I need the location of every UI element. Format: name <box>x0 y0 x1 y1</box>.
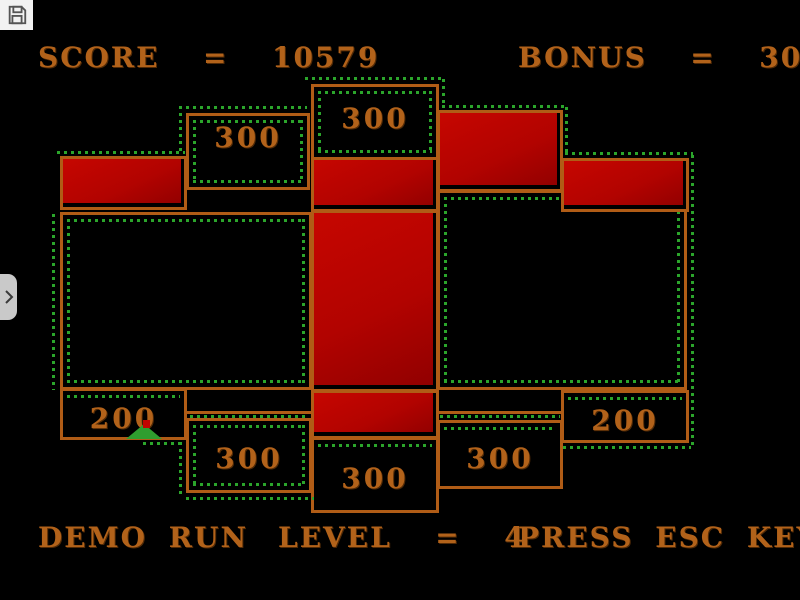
level-text: LEVEL = 4 <box>278 524 526 552</box>
wall-segment <box>186 411 312 414</box>
trail-segment <box>565 107 568 155</box>
trail-outline <box>67 219 305 383</box>
board-box <box>437 190 687 390</box>
trail-outline <box>444 427 556 430</box>
press-esc-text: PRESS ESC KEY <box>518 524 800 552</box>
trail-segment <box>442 105 568 108</box>
board-box: 300 <box>311 437 439 513</box>
trail-segment <box>563 446 691 449</box>
floppy-disk-icon <box>6 4 28 26</box>
trail-segment <box>691 155 694 447</box>
box-score-label: 300 <box>189 445 309 473</box>
trail-segment <box>565 152 693 155</box>
box-score-label: 300 <box>314 105 436 133</box>
box-score-label: 300 <box>189 124 307 152</box>
board-box <box>60 212 312 390</box>
board-box: 200 <box>561 390 689 443</box>
trail-segment <box>440 415 560 418</box>
red-block <box>311 390 439 439</box>
board-box: 200 <box>60 388 187 440</box>
chevron-right-icon <box>4 290 14 304</box>
trail-segment <box>190 415 308 418</box>
player-sprite-dot <box>143 420 150 428</box>
red-block <box>437 110 563 192</box>
trail-segment <box>143 442 183 445</box>
wall-segment <box>437 411 563 414</box>
trail-outline <box>568 397 682 400</box>
trail-outline <box>444 197 680 383</box>
trail-segment <box>57 151 185 154</box>
trail-segment <box>305 77 443 80</box>
box-score-label: 300 <box>440 445 560 473</box>
trail-segment <box>52 214 55 390</box>
sidebar-expand-tab[interactable] <box>0 274 17 320</box>
box-score-label: 200 <box>63 405 184 433</box>
red-block <box>561 158 689 212</box>
red-block <box>60 156 187 210</box>
trail-outline <box>318 444 432 447</box>
demo-run-text: DEMO RUN <box>38 524 248 552</box>
save-button[interactable] <box>0 0 33 30</box>
trail-segment <box>442 79 445 107</box>
trail-segment <box>179 106 182 153</box>
board-box: 300 <box>186 418 312 493</box>
box-score-label: 300 <box>314 465 436 493</box>
board-box: 300 <box>311 84 439 160</box>
trail-segment <box>186 497 314 500</box>
trail-segment <box>179 442 182 498</box>
red-block <box>311 210 439 392</box>
trail-segment <box>179 106 307 109</box>
board-box: 300 <box>437 420 563 489</box>
game-screen: SCORE = 10579 BONUS = 3020 3003002002003… <box>0 0 800 600</box>
board-box: 300 <box>186 113 310 190</box>
bonus-text: BONUS = 3020 <box>518 44 800 72</box>
red-block <box>311 157 439 212</box>
trail-outline <box>67 395 180 398</box>
box-score-label: 200 <box>564 407 686 435</box>
score-text: SCORE = 10579 <box>38 44 379 72</box>
